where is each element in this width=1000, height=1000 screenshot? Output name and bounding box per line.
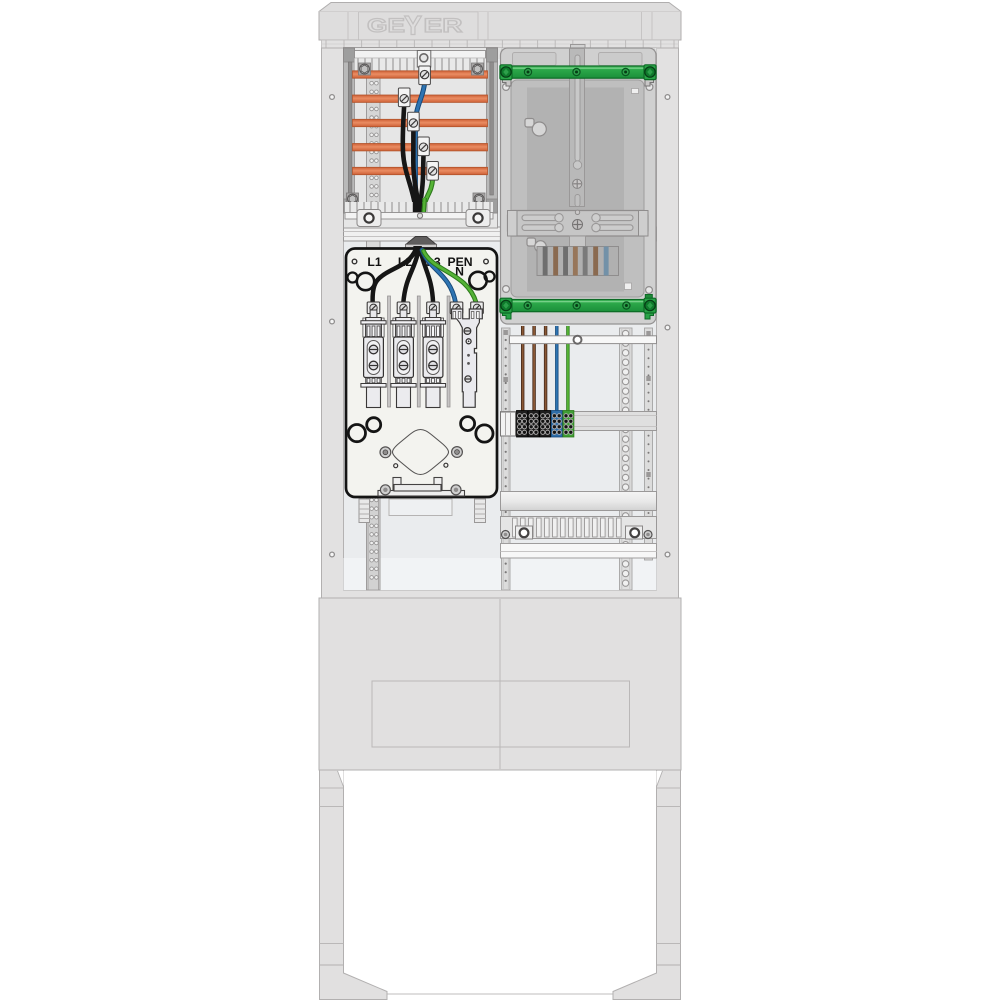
svg-text:Y: Y — [404, 11, 422, 41]
svg-text:L1: L1 — [367, 255, 381, 269]
svg-text:ER: ER — [424, 15, 463, 37]
svg-text:GE: GE — [367, 15, 405, 37]
